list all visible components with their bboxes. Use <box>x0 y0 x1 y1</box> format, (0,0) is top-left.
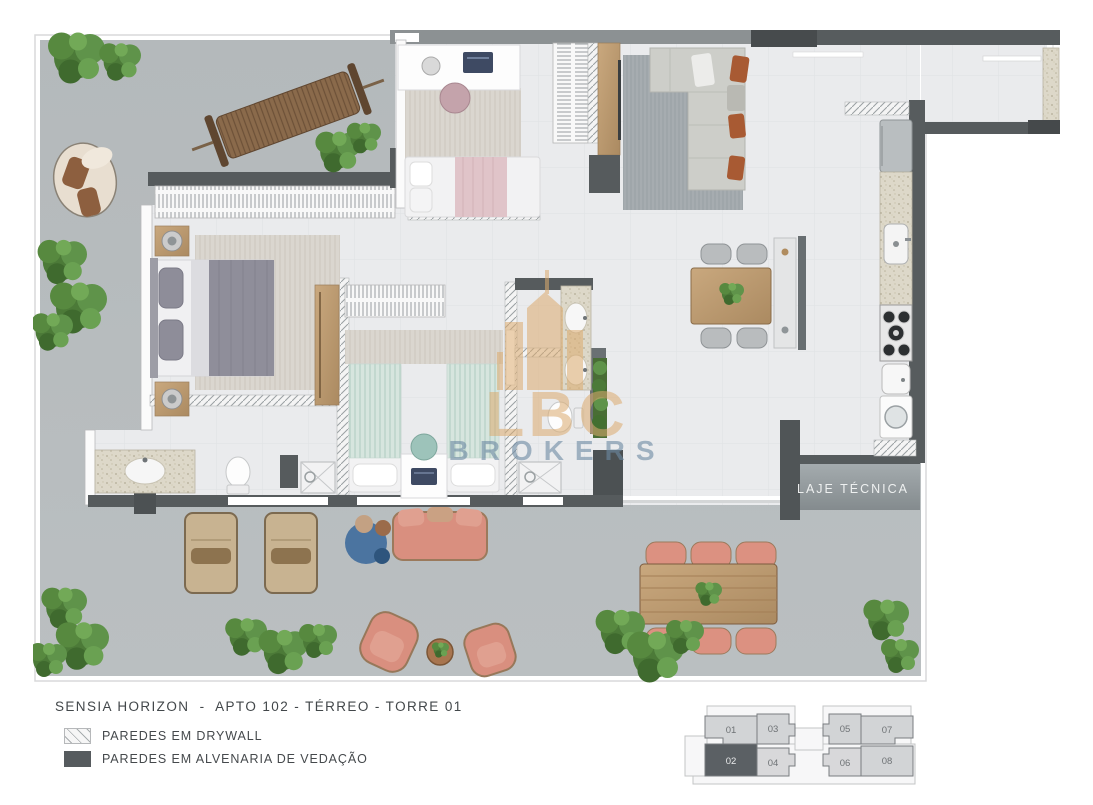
living-room <box>623 48 750 210</box>
shelf <box>345 285 445 317</box>
plan-title: SENSIA HORIZON - APTO 102 - TÉRREO - TOR… <box>55 699 463 714</box>
fridge <box>880 120 912 172</box>
keyplan: 01 03 05 07 02 04 06 08 <box>683 698 935 790</box>
keyplan-label-01: 01 <box>726 725 737 736</box>
outdoor-sofa <box>393 507 487 560</box>
kitchen <box>880 120 912 438</box>
keyplan-label-08: 08 <box>882 756 893 767</box>
master-bedroom <box>150 226 340 416</box>
keyplan-label-07: 07 <box>882 725 893 736</box>
chair <box>737 328 767 348</box>
guest-bedroom <box>398 45 540 217</box>
pouf <box>355 515 373 533</box>
chair <box>736 628 776 654</box>
lounge-chair <box>265 513 317 593</box>
washing-machine <box>880 396 912 438</box>
stove <box>880 305 912 361</box>
watermark-word: BROKERS <box>448 435 665 466</box>
chair <box>737 244 767 264</box>
laje-tecnica-label: LAJE TÉCNICA <box>797 481 909 496</box>
legend-row-masonry: PAREDES EM ALVENARIA DE VEDAÇÃO <box>64 750 368 767</box>
tv-panel <box>618 60 621 140</box>
pouf <box>374 548 390 564</box>
keyplan-label-06: 06 <box>840 758 851 769</box>
rug <box>345 330 503 364</box>
shower <box>301 462 335 493</box>
floor-plan: LBC BROKERS LAJE TÉCNICA <box>33 30 1062 685</box>
legend: PAREDES EM DRYWALL PAREDES EM ALVENARIA … <box>64 727 368 773</box>
single-bed <box>405 157 540 217</box>
service-shelf <box>983 56 1041 61</box>
hall-closet <box>553 43 588 143</box>
shower <box>519 462 561 493</box>
masonry-swatch <box>64 751 91 767</box>
pouf <box>375 520 391 536</box>
keyplan-label-05: 05 <box>840 724 851 735</box>
drywall-swatch <box>64 728 91 744</box>
wardrobe <box>315 285 339 405</box>
keyplan-label-04: 04 <box>768 758 779 769</box>
chair <box>440 83 470 113</box>
dining-area <box>691 236 806 350</box>
drywall-label: PAREDES EM DRYWALL <box>102 729 262 743</box>
keyplan-label-02: 02 <box>726 756 737 767</box>
page: { "caption": { "title": "SENSIA HORIZON … <box>0 0 1093 805</box>
toilet <box>226 457 250 494</box>
keyplan-label-03: 03 <box>768 724 779 735</box>
service-area <box>917 38 1060 134</box>
legend-row-drywall: PAREDES EM DRYWALL <box>64 727 368 744</box>
chair <box>701 328 731 348</box>
wardrobe <box>598 43 620 155</box>
floor-plan-svg: LBC BROKERS LAJE TÉCNICA <box>33 30 1062 685</box>
chair <box>701 244 731 264</box>
lounge-chair <box>185 513 237 593</box>
single-bed <box>349 364 401 492</box>
masonry-label: PAREDES EM ALVENARIA DE VEDAÇÃO <box>102 752 368 766</box>
master-closet <box>155 186 395 218</box>
double-bed <box>150 258 274 378</box>
laundry-tank <box>882 364 910 394</box>
